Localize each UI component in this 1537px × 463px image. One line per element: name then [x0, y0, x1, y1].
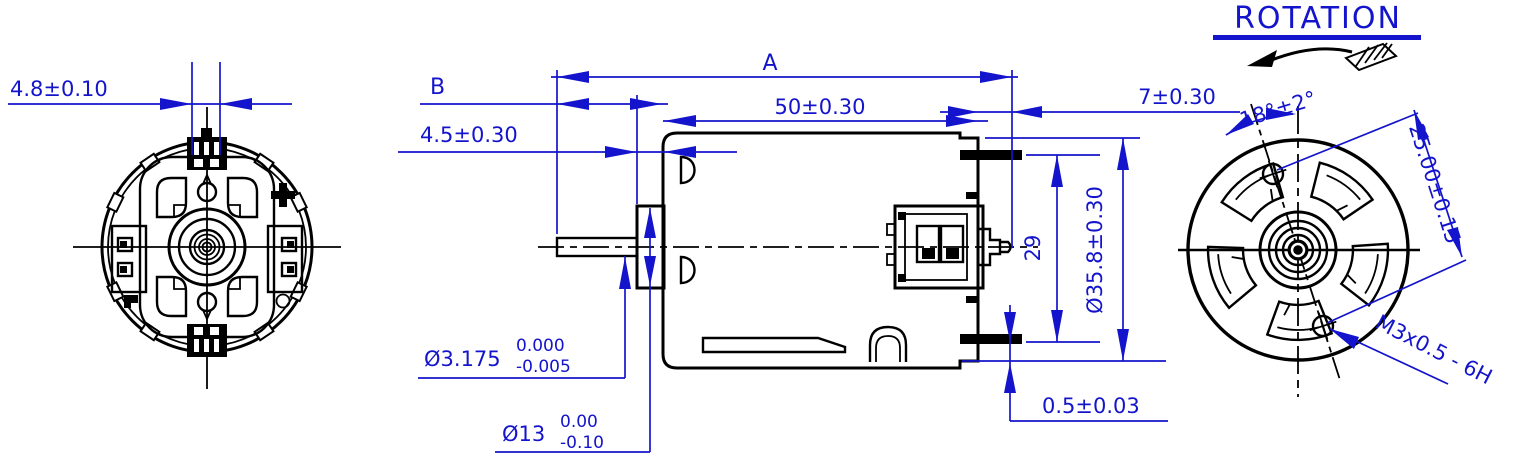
- side-view-vent-1: [681, 157, 695, 183]
- dim-terminal-width: 4.8±0.10: [8, 62, 292, 155]
- dim-shaft-diameter-upper-tol: 0.000: [516, 336, 565, 356]
- dim-shaft-diameter: Ø3.175 0.000 -0.005: [418, 256, 631, 378]
- motor-drawing-canvas: 4.8±0.10: [0, 0, 1537, 463]
- side-view-crimp-notch-2: [966, 296, 978, 303]
- dim-endcap-step: 0.5±0.03: [1004, 305, 1168, 421]
- back-view: [73, 107, 341, 389]
- back-view-terminal-top: [187, 128, 227, 170]
- dim-shaft-extension-B: B: [420, 75, 668, 110]
- dim-case-length-text: 50±0.30: [774, 95, 865, 119]
- dim-mount-thread: M3x0.5 - 6H: [1330, 310, 1496, 389]
- dim-case-diameter-text: Ø35.8±0.30: [1083, 186, 1107, 314]
- dim-shaft-diameter-nominal: Ø3.175: [424, 347, 501, 371]
- dim-rear-boss-length: 7±0.30: [940, 85, 1240, 118]
- front-view-mount-hole-upper: [1260, 161, 1287, 188]
- drawing-svg: 4.8±0.10: [0, 0, 1537, 463]
- dim-case-diameter: Ø35.8±0.30: [962, 138, 1166, 361]
- dim-collar-length: 4.5±0.30: [398, 95, 737, 204]
- side-view-brush-dome: [870, 327, 906, 362]
- dim-collar-diameter-nominal: Ø13: [502, 422, 545, 446]
- dim-mount-hole-spacing-text: 25.00±0.15: [1404, 121, 1465, 247]
- rotation-label: ROTATION: [1234, 1, 1402, 36]
- dim-collar-length-text: 4.5±0.30: [420, 123, 518, 147]
- side-view-bottom-tab: [703, 338, 845, 352]
- dim-A-text: A: [762, 51, 777, 76]
- dim-collar-diameter: Ø13 0.00 -0.10: [495, 208, 656, 453]
- dim-mount-hole-spacing: 25.00±0.15: [1277, 110, 1466, 323]
- dim-collar-diameter-lower-tol: -0.10: [560, 433, 604, 453]
- dim-endcap-step-text: 0.5±0.03: [1042, 394, 1140, 418]
- rotation-arrow-icon: [1247, 43, 1396, 70]
- dim-rear-boss-text: 7±0.30: [1138, 85, 1216, 109]
- dim-terminal-width-text: 4.8±0.10: [10, 77, 108, 101]
- back-view-terminal-bottom: [187, 324, 227, 357]
- dim-shaft-diameter-lower-tol: -0.005: [516, 357, 571, 377]
- dim-B-text: B: [430, 75, 445, 100]
- side-view-crimp-notch-1: [966, 192, 978, 199]
- dim-mount-hole-angle-text: 18°±2°: [1237, 86, 1319, 132]
- side-view: [538, 133, 1038, 368]
- front-view-mount-hole-lower: [1310, 313, 1337, 340]
- dim-terminal-span-text: 29: [1021, 235, 1045, 262]
- side-view-terminal-lower: [960, 334, 1022, 344]
- dim-case-length: 50±0.30: [663, 95, 988, 127]
- dim-mount-hole-angle: 18°±2°: [1226, 86, 1319, 135]
- front-view: [1178, 104, 1420, 397]
- rotation-underline: [1213, 35, 1421, 40]
- side-view-vent-2: [681, 257, 695, 283]
- dim-collar-diameter-upper-tol: 0.00: [560, 412, 598, 432]
- rotation-callout: ROTATION: [1213, 1, 1421, 70]
